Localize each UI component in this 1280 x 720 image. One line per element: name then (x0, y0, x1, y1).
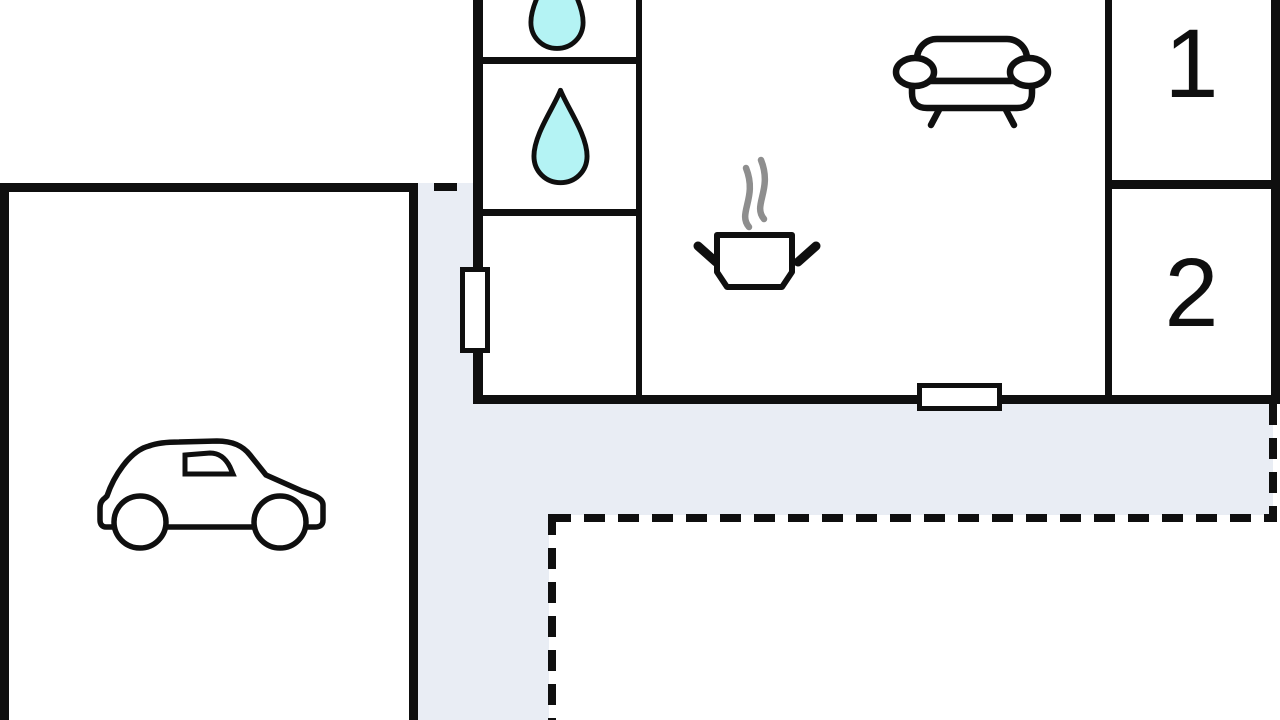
window-symbol (917, 383, 1002, 411)
car-icon (97, 434, 339, 552)
room-number: 1 (1112, 0, 1271, 136)
cooking-pot-icon (692, 156, 822, 294)
terrace-dashed-boundary (548, 514, 556, 720)
window-symbol (460, 267, 490, 353)
water-drop-icon (528, 0, 586, 53)
water-drop-icon (531, 86, 590, 187)
terrace-dashed-boundary (1269, 404, 1277, 515)
building-right-wall (1271, 0, 1280, 404)
room-number: 2 (1112, 189, 1271, 395)
terrace-area (418, 404, 1273, 515)
building-bottom-wall (473, 395, 1280, 404)
terrace-dashed-boundary (550, 514, 1277, 522)
garage-right-wall (409, 183, 418, 720)
floor-plan: 1 2 (0, 0, 1280, 720)
garage-top-wall (0, 183, 418, 192)
bathroom-right-wall (636, 0, 642, 395)
steam-icon (745, 160, 765, 227)
terrace-area (418, 515, 549, 720)
bedroom-divider-wall (1112, 180, 1271, 189)
garage-left-wall (0, 183, 9, 720)
bedrooms-left-wall (1105, 0, 1112, 395)
dashed-boundary-segment (434, 183, 457, 191)
sofa-icon (893, 33, 1051, 128)
bathroom-divider-wall (483, 57, 636, 64)
bathroom-divider-wall (483, 209, 636, 216)
